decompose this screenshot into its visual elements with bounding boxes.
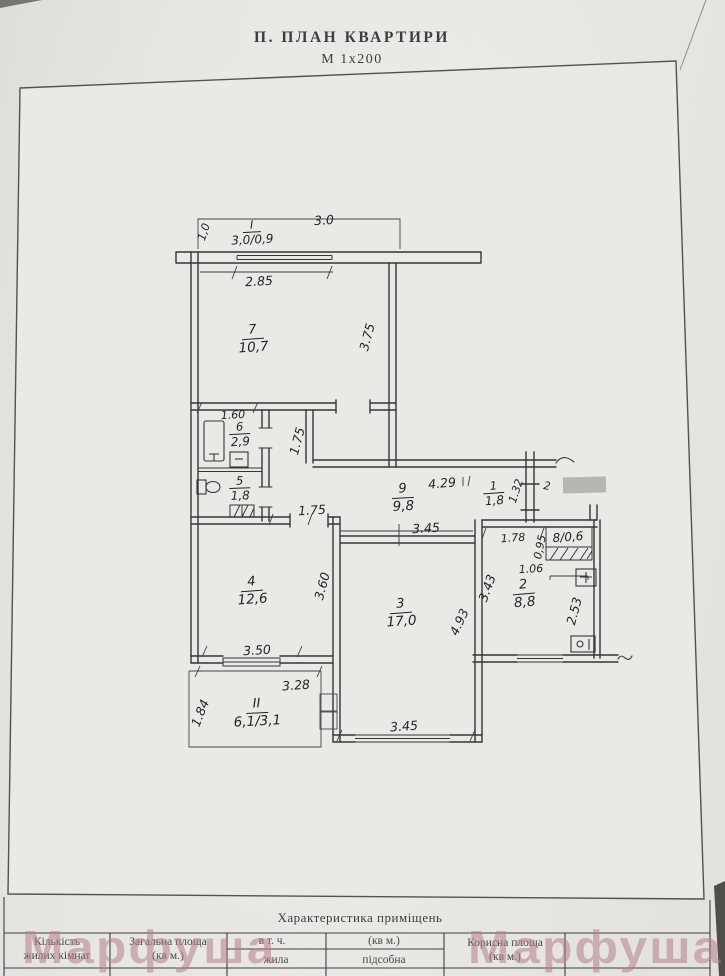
room-1-label: 1 1,8: [482, 479, 505, 509]
col-incl-units: (кв м.): [368, 935, 400, 947]
dim-1-75-horiz: 1.75: [298, 502, 327, 518]
dim-3-0: 3.0: [314, 212, 335, 228]
room-4-label: 4 12,6: [236, 573, 268, 608]
watermark-left: Марфуша: [22, 920, 277, 974]
page-title: П. ПЛАН КВАРТИРИ: [254, 29, 450, 47]
room-3-label: 3 17,0: [385, 595, 417, 630]
room-5-label: 5 1,8: [229, 474, 251, 504]
col-auxiliary-label: підсобна: [362, 954, 405, 966]
dim-2-85: 2.85: [245, 273, 274, 289]
dim-3-28: 3.28: [282, 677, 311, 694]
room-7-label: 7 10,7: [237, 321, 269, 356]
room-balcony-ii-label: II 6,1/3,1: [232, 695, 281, 731]
room-6-label: 6 2,9: [229, 420, 252, 450]
room-8-label: 8/0,6: [552, 529, 584, 545]
dim-1-06: 1.06: [518, 562, 543, 576]
room-2-label: 2 8,8: [511, 577, 536, 612]
room-balcony-i-label: I 3,0/0,9: [230, 218, 274, 249]
dim-3-45-top: 3.45: [412, 520, 441, 536]
dim-1-78: 1.78: [500, 531, 525, 546]
floorplan-drawing: [0, 0, 725, 976]
dim-3-45-bottom: 3.45: [390, 718, 419, 735]
dim-1-60: 1.60: [220, 408, 245, 422]
table-caption: Характеристика приміщень: [278, 910, 443, 926]
dim-4-29: 4.29: [427, 474, 456, 491]
scanned-floorplan-page: П. ПЛАН КВАРТИРИ М 1х200 I 3,0/0,9 7 10,…: [0, 0, 725, 976]
watermark-right: Марфуша: [468, 920, 723, 974]
sheet-frame: [8, 0, 706, 899]
dim-3-50: 3.50: [243, 642, 272, 658]
scale-label: М 1х200: [321, 52, 382, 68]
room-9-label: 9 9,8: [391, 481, 415, 515]
redaction-block: [563, 476, 606, 493]
